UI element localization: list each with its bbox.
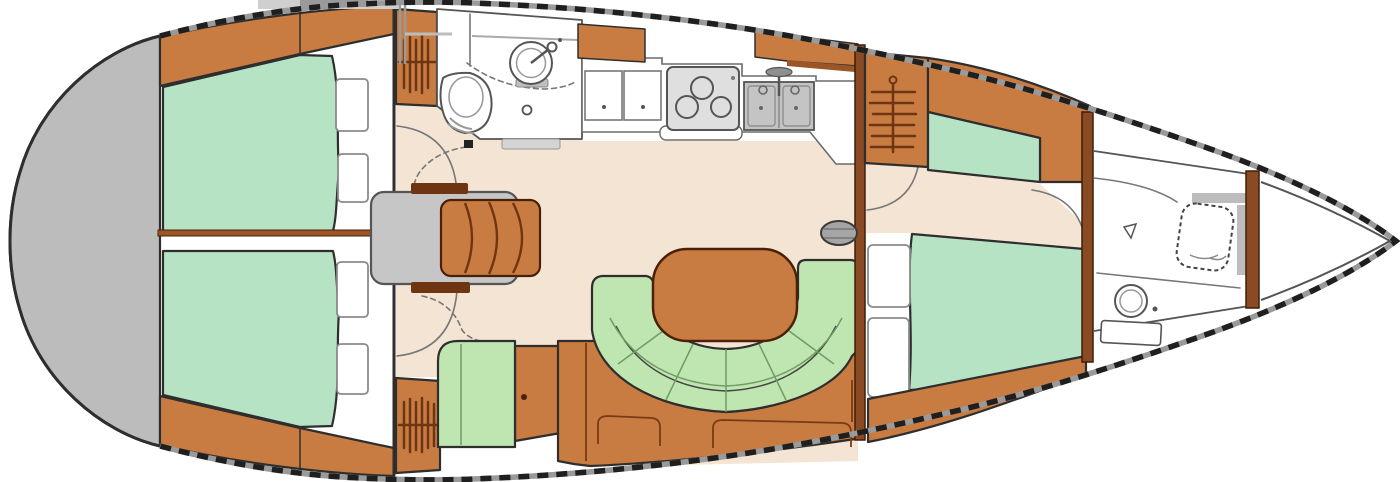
burner bbox=[691, 77, 713, 99]
bow-bulkhead bbox=[1246, 171, 1259, 308]
sink-knob bbox=[558, 38, 562, 42]
aft-cabin-port: aft cabin berth (top) bbox=[160, 6, 394, 231]
pillow bbox=[868, 245, 910, 307]
fwd-hanging-locker bbox=[865, 52, 928, 167]
burner bbox=[676, 96, 698, 118]
fridge-door bbox=[585, 71, 622, 120]
salon-table bbox=[653, 249, 797, 341]
cabin-divider-wall bbox=[158, 230, 374, 236]
pillow bbox=[337, 262, 368, 317]
steps-block bbox=[441, 200, 540, 276]
stern-platform: stern transom platform bbox=[10, 36, 160, 446]
locker-door bbox=[624, 71, 661, 120]
pillow bbox=[337, 344, 368, 394]
table-knob bbox=[521, 394, 527, 400]
companionway: companionway steps and engine box bbox=[371, 183, 540, 293]
salon: salon U-settee with table bbox=[558, 249, 862, 466]
stove-knob bbox=[731, 76, 735, 80]
floor-drain bbox=[523, 106, 532, 115]
fwd-sink-knob bbox=[1153, 307, 1158, 312]
pillow bbox=[336, 79, 368, 131]
galley-faucet bbox=[766, 68, 792, 77]
berth-mattress bbox=[163, 251, 339, 427]
mast-step: mast step bbox=[821, 221, 857, 245]
handrail bbox=[411, 183, 468, 194]
fridge-handle bbox=[602, 105, 606, 109]
locker-handle bbox=[641, 105, 645, 109]
boat-floor-plan: sailboat interior floor plan, bow right,… bbox=[0, 0, 1400, 482]
mast bbox=[821, 221, 857, 245]
nav-seat bbox=[438, 341, 515, 447]
handrail bbox=[411, 282, 470, 293]
burner bbox=[711, 97, 731, 117]
berth-mattress bbox=[163, 55, 339, 231]
hanging-locker-bottom: hanging locker bbox=[396, 378, 440, 473]
aft-head: aft head with toilet and sink bbox=[437, 9, 582, 149]
threshold-step bbox=[502, 139, 560, 149]
sink-drain bbox=[759, 106, 763, 110]
pillow bbox=[868, 318, 909, 397]
sink-drain bbox=[794, 106, 798, 110]
pillow bbox=[338, 154, 368, 202]
sink-faucet-head bbox=[548, 43, 557, 52]
floor-plan-canvas: sailboat interior floor plan, bow right,… bbox=[0, 0, 1400, 482]
fwd-sink-counter bbox=[1100, 320, 1161, 345]
galley-upper-locker bbox=[578, 24, 645, 62]
fwd-toilet bbox=[1175, 202, 1235, 273]
hanging-locker-top: hanging locker bbox=[396, 9, 437, 106]
nav-station: chart table and seat bbox=[438, 341, 572, 447]
door-hinge bbox=[464, 140, 473, 148]
main-bulkhead: main bulkhead bbox=[855, 45, 865, 440]
counter-ledge bbox=[1192, 193, 1246, 203]
fwd-bulkhead bbox=[1082, 112, 1093, 362]
